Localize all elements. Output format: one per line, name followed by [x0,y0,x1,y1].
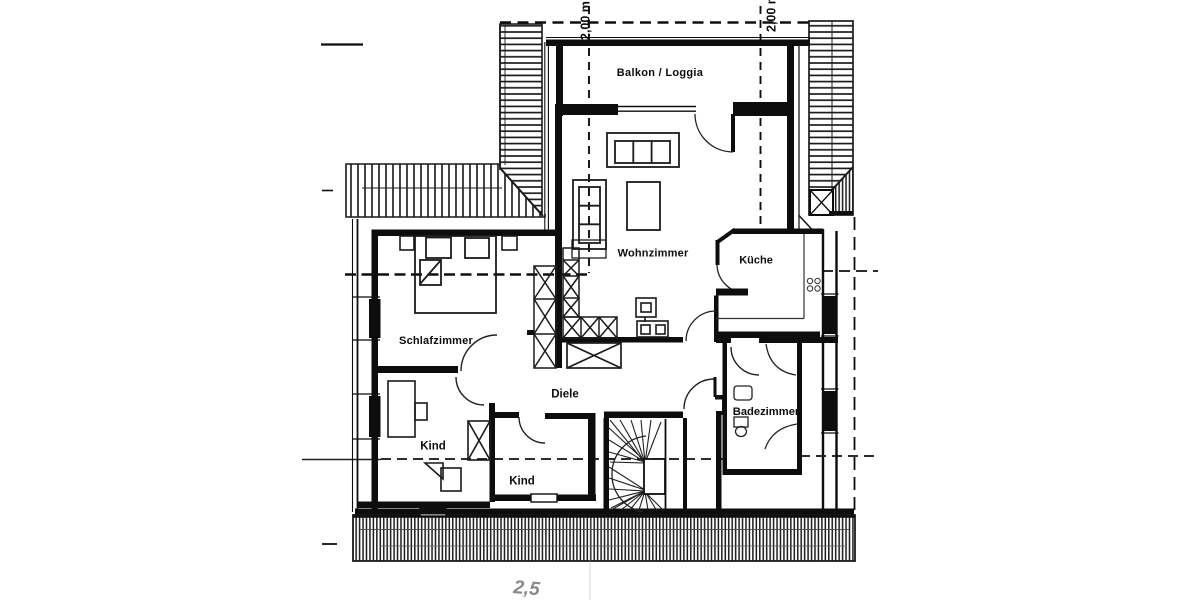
svg-text:Küche: Küche [739,255,773,267]
svg-text:2,00 m: 2,00 m [765,0,779,32]
svg-text:Wohnzimmer: Wohnzimmer [618,248,689,260]
svg-text:Kind: Kind [420,441,446,453]
svg-text:2,00 m: 2,00 m [579,1,593,40]
svg-text:Diele: Diele [551,389,579,401]
svg-text:2,5: 2,5 [512,577,542,600]
svg-text:Kind: Kind [509,476,535,488]
svg-text:Schlafzimmer: Schlafzimmer [399,335,473,347]
svg-text:Badezimmer: Badezimmer [733,406,800,418]
svg-text:Balkon / Loggia: Balkon / Loggia [617,67,704,79]
